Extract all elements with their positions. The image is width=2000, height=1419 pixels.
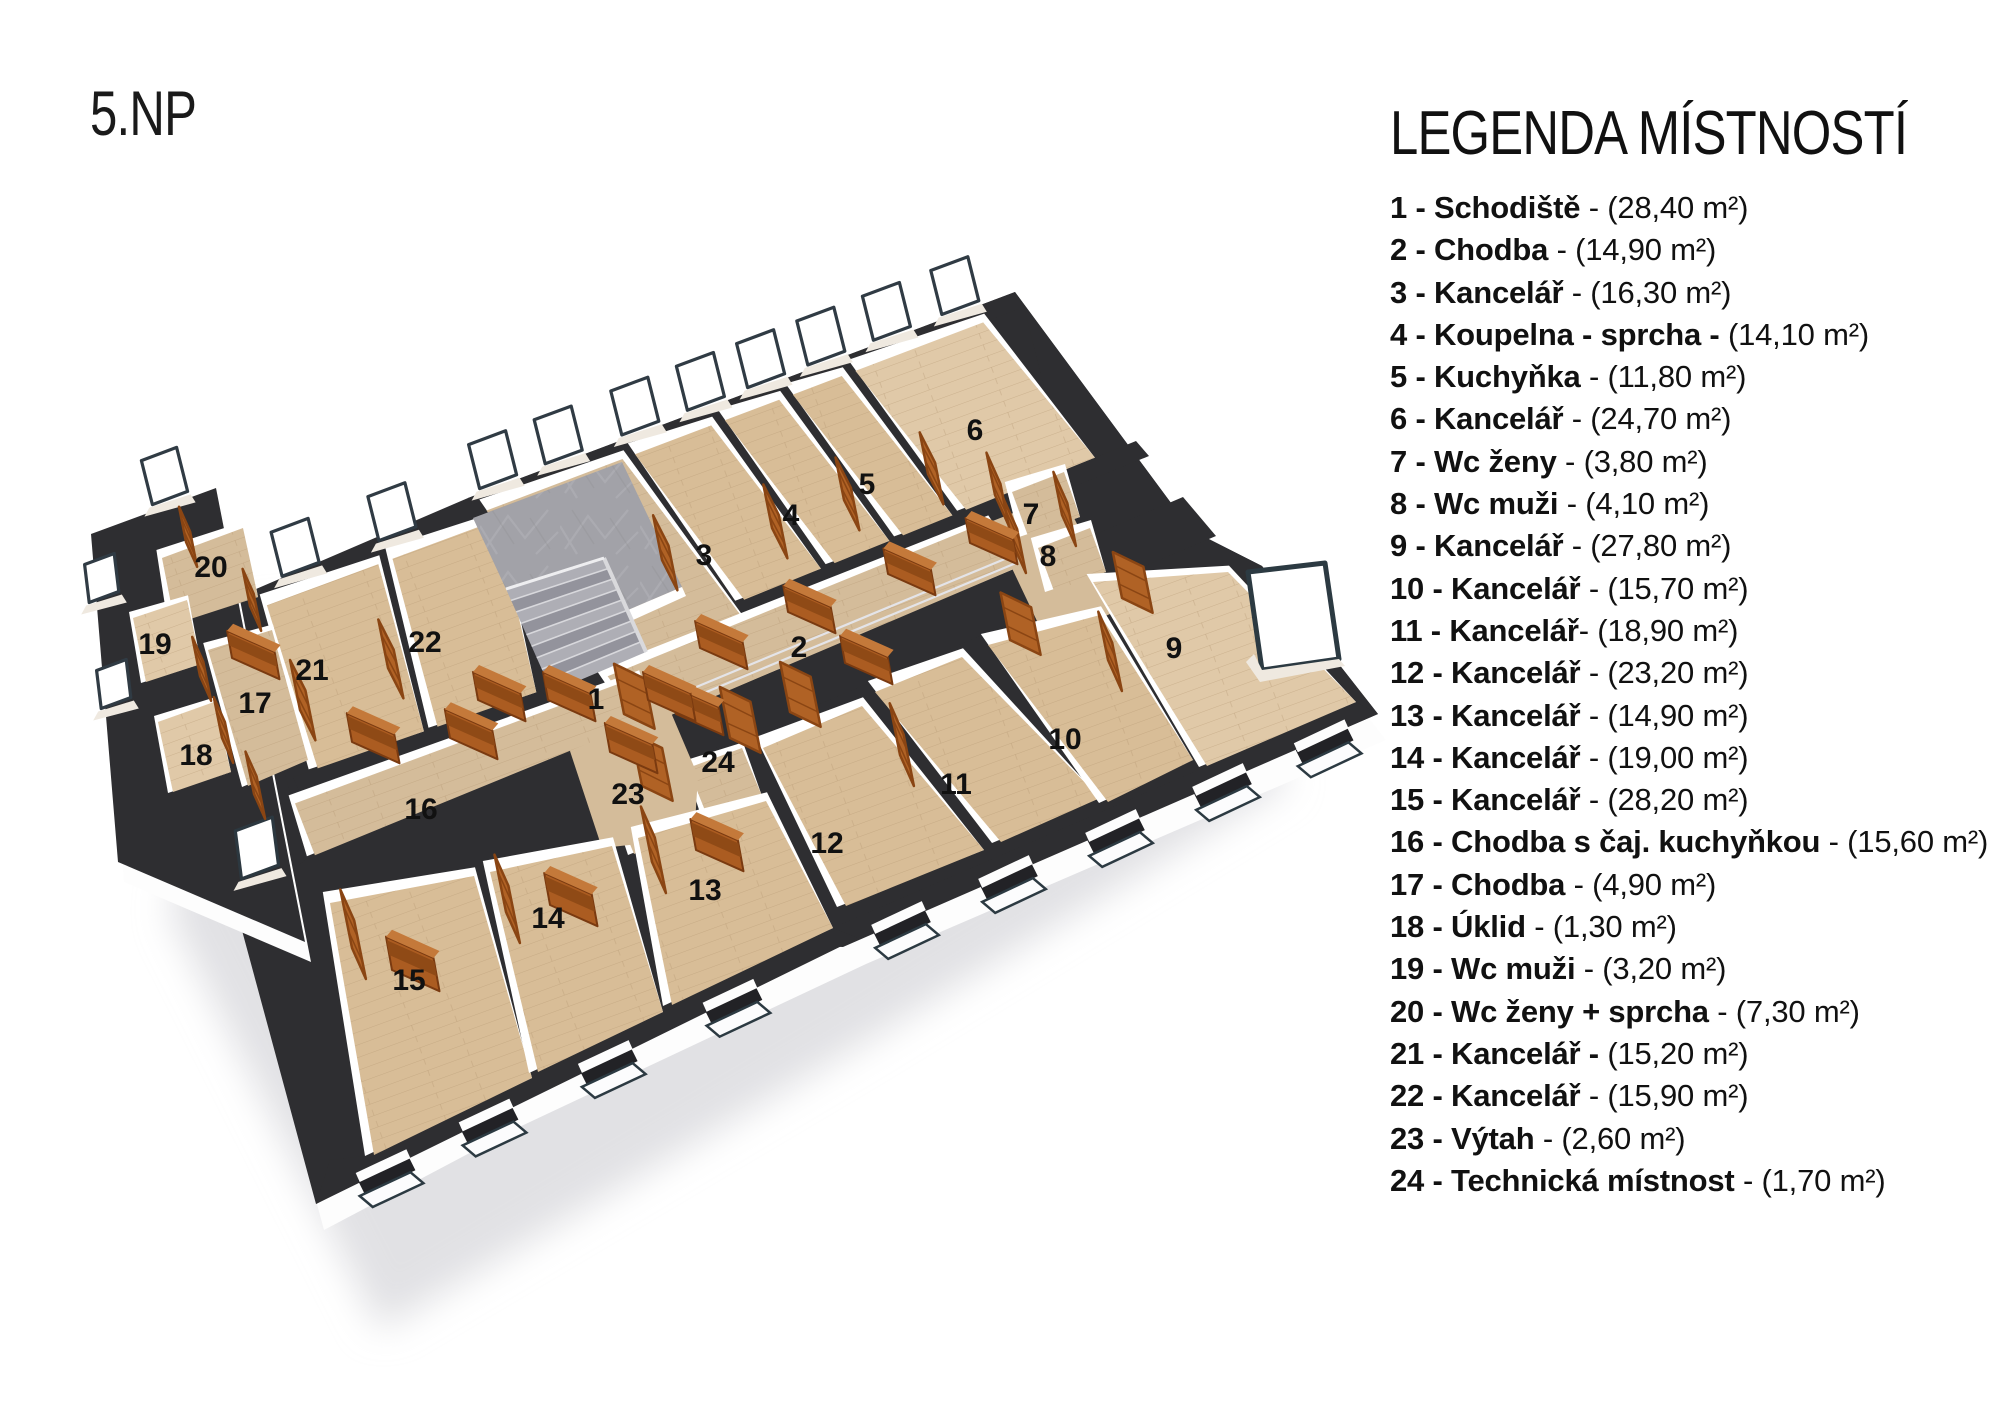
svg-text:11: 11 xyxy=(940,768,972,801)
svg-text:12: 12 xyxy=(810,827,843,860)
svg-text:5: 5 xyxy=(859,468,876,501)
svg-text:9: 9 xyxy=(1166,632,1183,665)
svg-text:17: 17 xyxy=(238,687,271,720)
svg-text:18: 18 xyxy=(179,739,212,772)
svg-text:8: 8 xyxy=(1040,540,1057,573)
svg-text:20: 20 xyxy=(194,551,227,584)
svg-text:16: 16 xyxy=(404,793,437,826)
svg-text:21: 21 xyxy=(295,654,328,687)
svg-text:6: 6 xyxy=(967,414,984,447)
svg-text:24: 24 xyxy=(701,746,735,779)
svg-text:22: 22 xyxy=(408,626,441,659)
svg-text:4: 4 xyxy=(783,499,800,532)
svg-text:10: 10 xyxy=(1048,723,1081,756)
svg-text:15: 15 xyxy=(392,964,425,997)
svg-text:23: 23 xyxy=(611,778,644,811)
svg-text:1: 1 xyxy=(588,683,605,716)
svg-text:3: 3 xyxy=(696,539,713,572)
svg-text:19: 19 xyxy=(138,628,171,661)
svg-text:14: 14 xyxy=(531,902,565,935)
svg-text:2: 2 xyxy=(791,631,808,664)
svg-text:13: 13 xyxy=(688,874,721,907)
svg-text:7: 7 xyxy=(1023,498,1040,531)
